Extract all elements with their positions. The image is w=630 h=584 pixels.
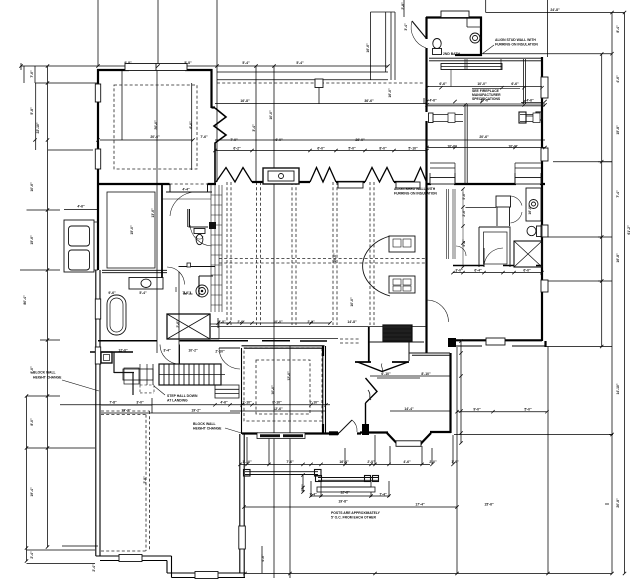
svg-text:12'-6": 12'-6" [273,407,283,411]
svg-text:1'-10": 1'-10" [309,401,319,405]
svg-text:7'-6": 7'-6" [286,460,294,464]
svg-text:2'-6": 2'-6" [176,320,180,328]
svg-text:HEIGHT CHANGE: HEIGHT CHANGE [33,376,62,380]
svg-text:7'-4": 7'-4" [309,493,317,497]
svg-text:15'-6": 15'-6" [484,503,494,507]
svg-text:6'-10": 6'-10" [381,372,391,376]
svg-text:16'-8": 16'-8" [240,99,250,103]
svg-text:4'-6": 4'-6" [526,99,534,103]
svg-text:ALIGN STUD WALL WITH: ALIGN STUD WALL WITH [495,38,536,42]
svg-text:SPECIFICATIONS: SPECIFICATIONS [472,97,501,101]
svg-text:2'-6": 2'-6" [462,209,466,217]
svg-text:7'-8": 7'-8" [109,401,117,405]
svg-text:5'-2": 5'-2" [462,239,466,247]
svg-text:AT LANDING: AT LANDING [167,399,188,403]
svg-text:2'-4": 2'-4" [92,564,96,572]
svg-text:ALIGN BRED WALL WITH: ALIGN BRED WALL WITH [394,187,436,191]
svg-text:5'-8": 5'-8" [30,107,34,115]
svg-text:5'-0": 5'-0" [462,192,466,200]
svg-text:2'-0": 2'-0" [307,320,315,324]
svg-text:15'-8": 15'-8" [616,125,620,135]
svg-text:2'-8": 2'-8" [143,476,147,484]
svg-text:10'-0": 10'-0" [477,82,487,86]
svg-text:6'-2": 6'-2" [233,147,241,151]
svg-text:4'-6": 4'-6" [403,460,411,464]
svg-text:12'-0": 12'-0" [287,371,291,381]
svg-text:22'-10": 22'-10" [36,122,40,133]
svg-text:16'-6": 16'-6" [366,43,370,53]
svg-text:14'-10": 14'-10" [616,383,620,394]
svg-text:4'-4": 4'-4" [182,188,190,192]
svg-text:5'-4": 5'-4" [139,291,147,295]
svg-text:1'-10": 1'-10" [242,460,252,464]
svg-text:HEIGHT CHANGE: HEIGHT CHANGE [193,427,222,431]
svg-text:5'-4": 5'-4" [242,61,250,65]
svg-text:16'-0": 16'-0" [388,88,392,98]
svg-text:6'-0": 6'-0" [317,147,325,151]
svg-text:19'-8": 19'-8" [338,500,348,504]
svg-text:3'-0": 3'-0" [136,401,144,405]
svg-text:80'-4": 80'-4" [23,295,27,305]
svg-text:6'-6": 6'-6" [439,82,447,86]
svg-text:7'-4": 7'-4" [379,493,387,497]
svg-text:10'-0": 10'-0" [269,110,273,120]
svg-text:5'-0": 5'-0" [524,408,532,412]
svg-text:8'-4": 8'-4" [616,25,620,33]
svg-text:20'-0": 20'-0" [154,120,158,130]
svg-text:2'-8": 2'-8" [401,2,405,10]
svg-text:8'-0": 8'-0" [379,147,387,151]
svg-text:19'-2": 19'-2" [191,409,201,413]
svg-text:POSTS ARE APPROXIMATELY: POSTS ARE APPROXIMATELY [331,511,381,515]
svg-text:5'-0": 5'-0" [348,147,356,151]
svg-text:10'-0": 10'-0" [350,297,354,307]
svg-text:4'-6": 4'-6" [429,99,437,103]
svg-text:19'-4": 19'-4" [30,487,34,497]
svg-text:6'-0": 6'-0" [523,269,531,273]
svg-text:16'-0": 16'-0" [333,253,337,263]
svg-text:3'-4": 3'-4" [404,23,408,31]
svg-text:3'-0": 3'-0" [455,269,463,273]
svg-text:3'-4": 3'-4" [163,349,171,353]
svg-text:16'-4": 16'-4" [339,460,349,464]
svg-text:7'-6": 7'-6" [200,135,208,139]
svg-text:2'-10": 2'-10" [215,350,225,354]
svg-text:12'-8": 12'-8" [340,491,350,495]
svg-text:16'-8": 16'-8" [616,253,620,263]
svg-text:5' O.C. FROM EACH OTHER: 5' O.C. FROM EACH OTHER [331,516,376,520]
svg-text:10'-0": 10'-0" [271,385,275,395]
svg-text:14'-8": 14'-8" [347,320,357,324]
svg-text:2'-4": 2'-4" [30,551,34,559]
svg-text:20'-6": 20'-6" [479,135,489,139]
svg-text:17'-4": 17'-4" [415,503,425,507]
svg-text:9'-8": 9'-8" [124,61,132,65]
svg-text:26'-0": 26'-0" [355,138,365,142]
svg-text:15'-6": 15'-6" [30,235,34,245]
svg-text:5'-10": 5'-10" [408,147,418,151]
svg-text:7'-6": 7'-6" [30,70,34,78]
svg-text:24'-8": 24'-8" [550,8,560,12]
svg-text:15'-0": 15'-0" [130,225,134,235]
svg-text:8'-10": 8'-10" [272,401,282,405]
svg-text:2'-0": 2'-0" [367,460,375,464]
svg-text:3'-4": 3'-4" [252,124,256,132]
svg-text:10'-2": 10'-2" [188,349,198,353]
svg-text:16'-0": 16'-0" [528,205,532,215]
svg-text:19'-2": 19'-2" [121,409,131,413]
svg-text:4'-6": 4'-6" [220,401,228,405]
svg-text:6'-6": 6'-6" [511,82,519,86]
svg-text:20'-6": 20'-6" [150,135,160,139]
svg-text:13'-6": 13'-6" [151,208,155,218]
svg-text:9'-6": 9'-6" [108,291,116,295]
svg-text:STEP HALL DOWN: STEP HALL DOWN [167,394,198,398]
svg-text:6'-0": 6'-0" [275,138,283,142]
svg-text:FURRING ON INSULATION: FURRING ON INSULATION [495,43,538,47]
svg-text:8'-0": 8'-0" [30,418,34,426]
svg-text:1'-10": 1'-10" [242,401,252,405]
svg-text:FURRING ON INSULATION: FURRING ON INSULATION [394,192,437,196]
svg-text:14'-4": 14'-4" [404,407,414,411]
svg-text:7'-6": 7'-6" [182,291,190,295]
svg-text:2ND BATH: 2ND BATH [443,52,460,56]
svg-text:4'-0": 4'-0" [261,554,265,562]
svg-text:12'-0": 12'-0" [118,349,128,353]
svg-text:10'-6": 10'-6" [447,144,457,148]
svg-text:4'-6": 4'-6" [77,205,85,209]
svg-text:20'-8": 20'-8" [616,498,620,508]
svg-text:5'-8": 5'-8" [184,61,192,65]
svg-text:9'-0": 9'-0" [473,408,481,412]
svg-text:10'-6": 10'-6" [30,182,34,192]
svg-text:7'-4": 7'-4" [616,190,620,198]
svg-text:1'-6": 1'-6" [451,460,459,464]
svg-text:36'-6": 36'-6" [364,99,374,103]
svg-text:4'-6": 4'-6" [616,75,620,83]
svg-text:10'-0": 10'-0" [273,320,283,324]
svg-text:8'-10": 8'-10" [421,372,431,376]
svg-text:6'-4": 6'-4" [474,269,482,273]
svg-text:7'-0": 7'-0" [230,138,238,142]
svg-text:6'-0": 6'-0" [189,121,193,129]
svg-text:5'-4": 5'-4" [296,61,304,65]
svg-text:BLOCK WALL: BLOCK WALL [33,371,56,375]
svg-text:BLOCK WALL: BLOCK WALL [193,422,216,426]
